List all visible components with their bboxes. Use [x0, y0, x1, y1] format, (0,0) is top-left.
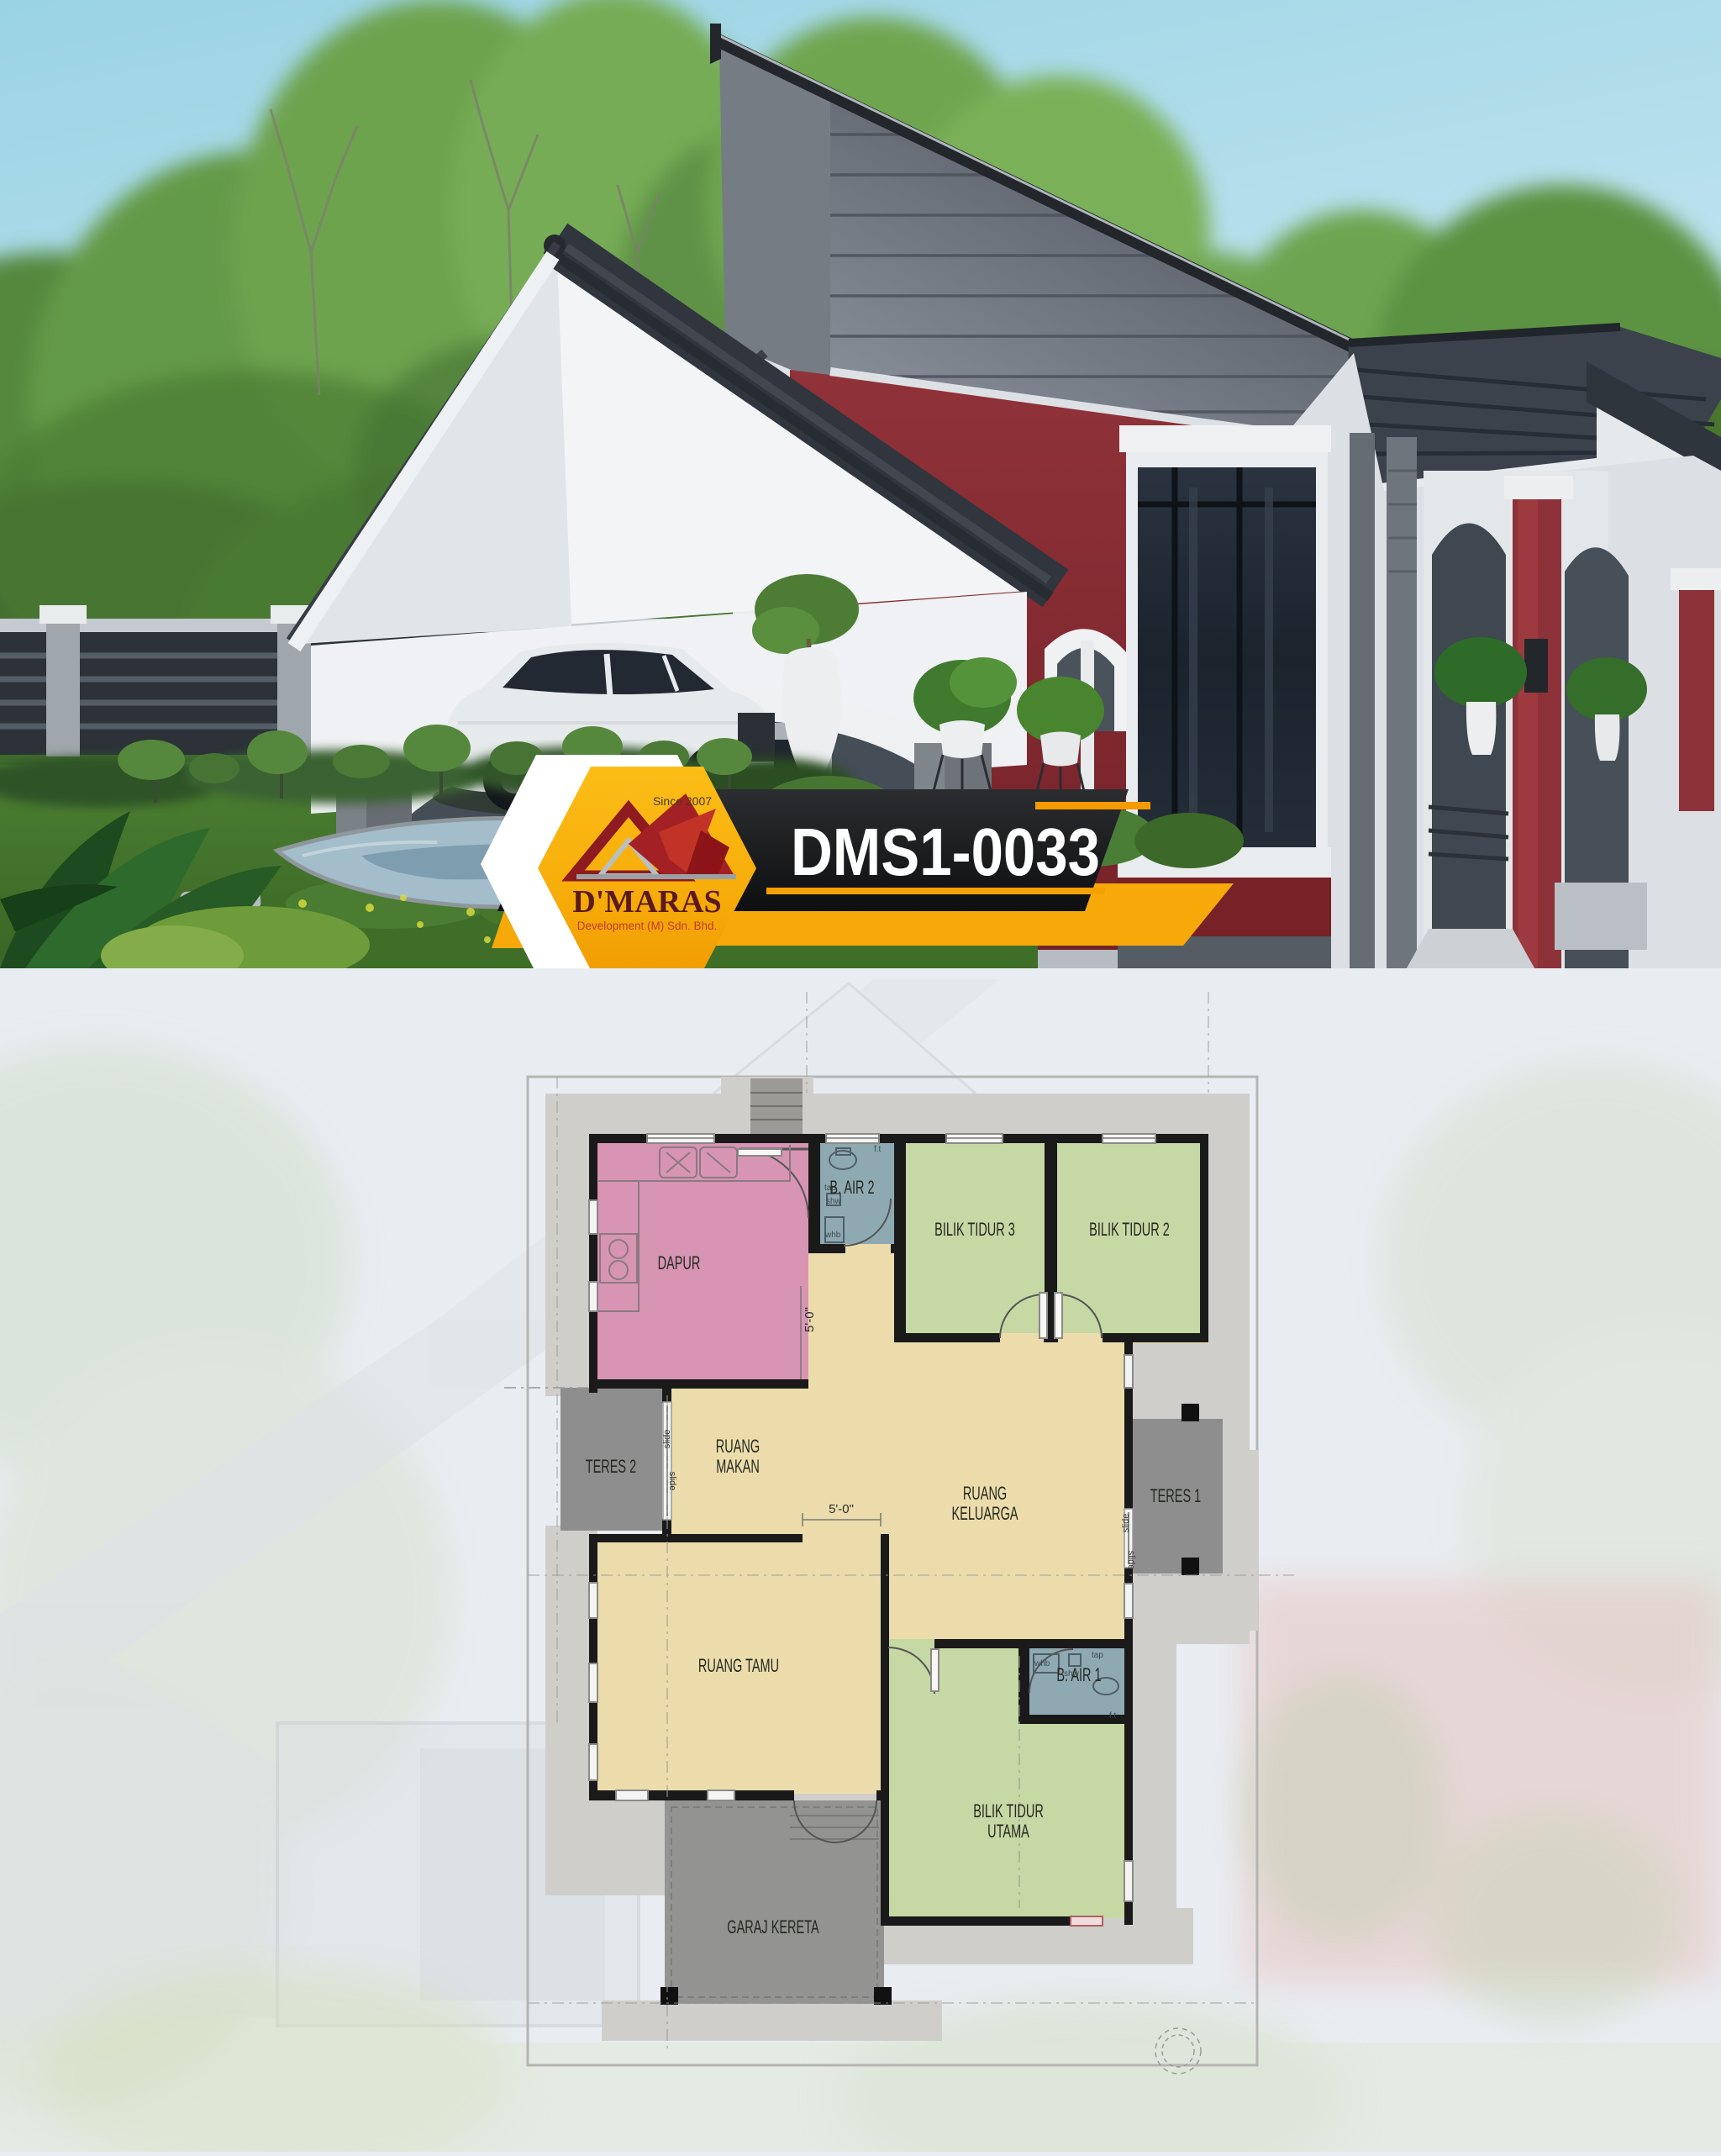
svg-text:RUANG TAMU: RUANG TAMU: [698, 1655, 779, 1676]
svg-text:D'MARAS: D'MARAS: [572, 884, 721, 920]
svg-text:GARAJ KERETA: GARAJ KERETA: [727, 1916, 819, 1937]
svg-text:whb: whb: [824, 1231, 841, 1240]
svg-text:slide: slide: [667, 1472, 677, 1491]
svg-text:TERES 1: TERES 1: [1150, 1485, 1201, 1506]
svg-text:Development (M) Sdn. Bhd.: Development (M) Sdn. Bhd.: [577, 920, 718, 932]
svg-text:DAPUR: DAPUR: [658, 1252, 701, 1273]
svg-text:shw: shw: [826, 1197, 842, 1206]
svg-text:Since 2007: Since 2007: [653, 794, 712, 808]
svg-text:BILIK TIDUR 2: BILIK TIDUR 2: [1089, 1219, 1170, 1240]
svg-text:MAKAN: MAKAN: [716, 1456, 760, 1477]
svg-text:slide: slide: [662, 1430, 672, 1449]
svg-text:DMS1-0033: DMS1-0033: [791, 814, 1100, 889]
svg-text:BILIK TIDUR 3: BILIK TIDUR 3: [934, 1219, 1015, 1240]
svg-text:TERES 2: TERES 2: [586, 1456, 636, 1477]
svg-text:UTAMA: UTAMA: [987, 1821, 1029, 1842]
svg-text:slide: slide: [1121, 1514, 1131, 1533]
svg-text:f.t: f.t: [1109, 1711, 1117, 1721]
svg-text:BILIK TIDUR: BILIK TIDUR: [973, 1800, 1044, 1821]
svg-text:5'-0": 5'-0": [829, 1502, 854, 1516]
svg-text:f.t: f.t: [874, 1145, 882, 1154]
svg-text:5'-0": 5'-0": [803, 1307, 817, 1332]
svg-text:tap: tap: [1092, 1651, 1103, 1660]
svg-text:RUANG: RUANG: [963, 1483, 1007, 1504]
svg-text:KELUARGA: KELUARGA: [952, 1503, 1018, 1524]
svg-text:RUANG: RUANG: [716, 1436, 760, 1457]
svg-text:whb: whb: [1034, 1659, 1050, 1668]
svg-text:B. AIR 1: B. AIR 1: [1056, 1664, 1101, 1685]
svg-text:B. AIR 2: B. AIR 2: [829, 1177, 874, 1198]
svg-text:slide: slide: [1126, 1551, 1136, 1570]
